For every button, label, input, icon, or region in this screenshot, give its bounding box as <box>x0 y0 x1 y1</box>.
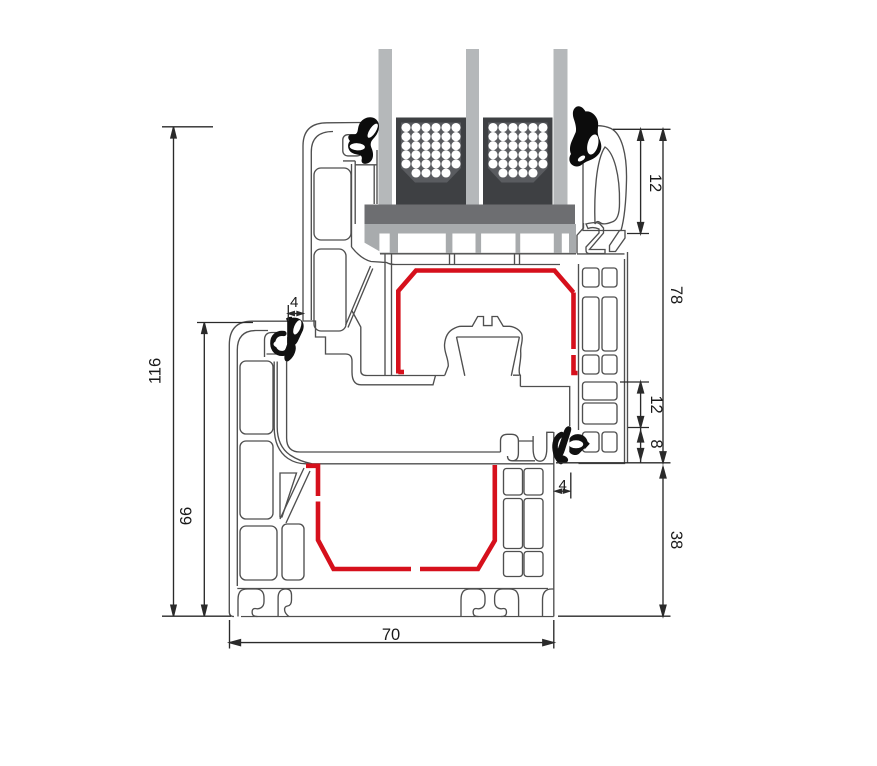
svg-text:12: 12 <box>647 395 665 413</box>
svg-text:70: 70 <box>382 626 400 644</box>
svg-text:4: 4 <box>559 477 567 494</box>
svg-text:78: 78 <box>667 286 685 304</box>
svg-text:12: 12 <box>646 174 664 192</box>
svg-text:4: 4 <box>290 294 298 311</box>
svg-text:8: 8 <box>647 439 665 448</box>
svg-text:116: 116 <box>147 358 165 384</box>
svg-text:66: 66 <box>178 507 196 525</box>
svg-text:38: 38 <box>667 531 685 549</box>
